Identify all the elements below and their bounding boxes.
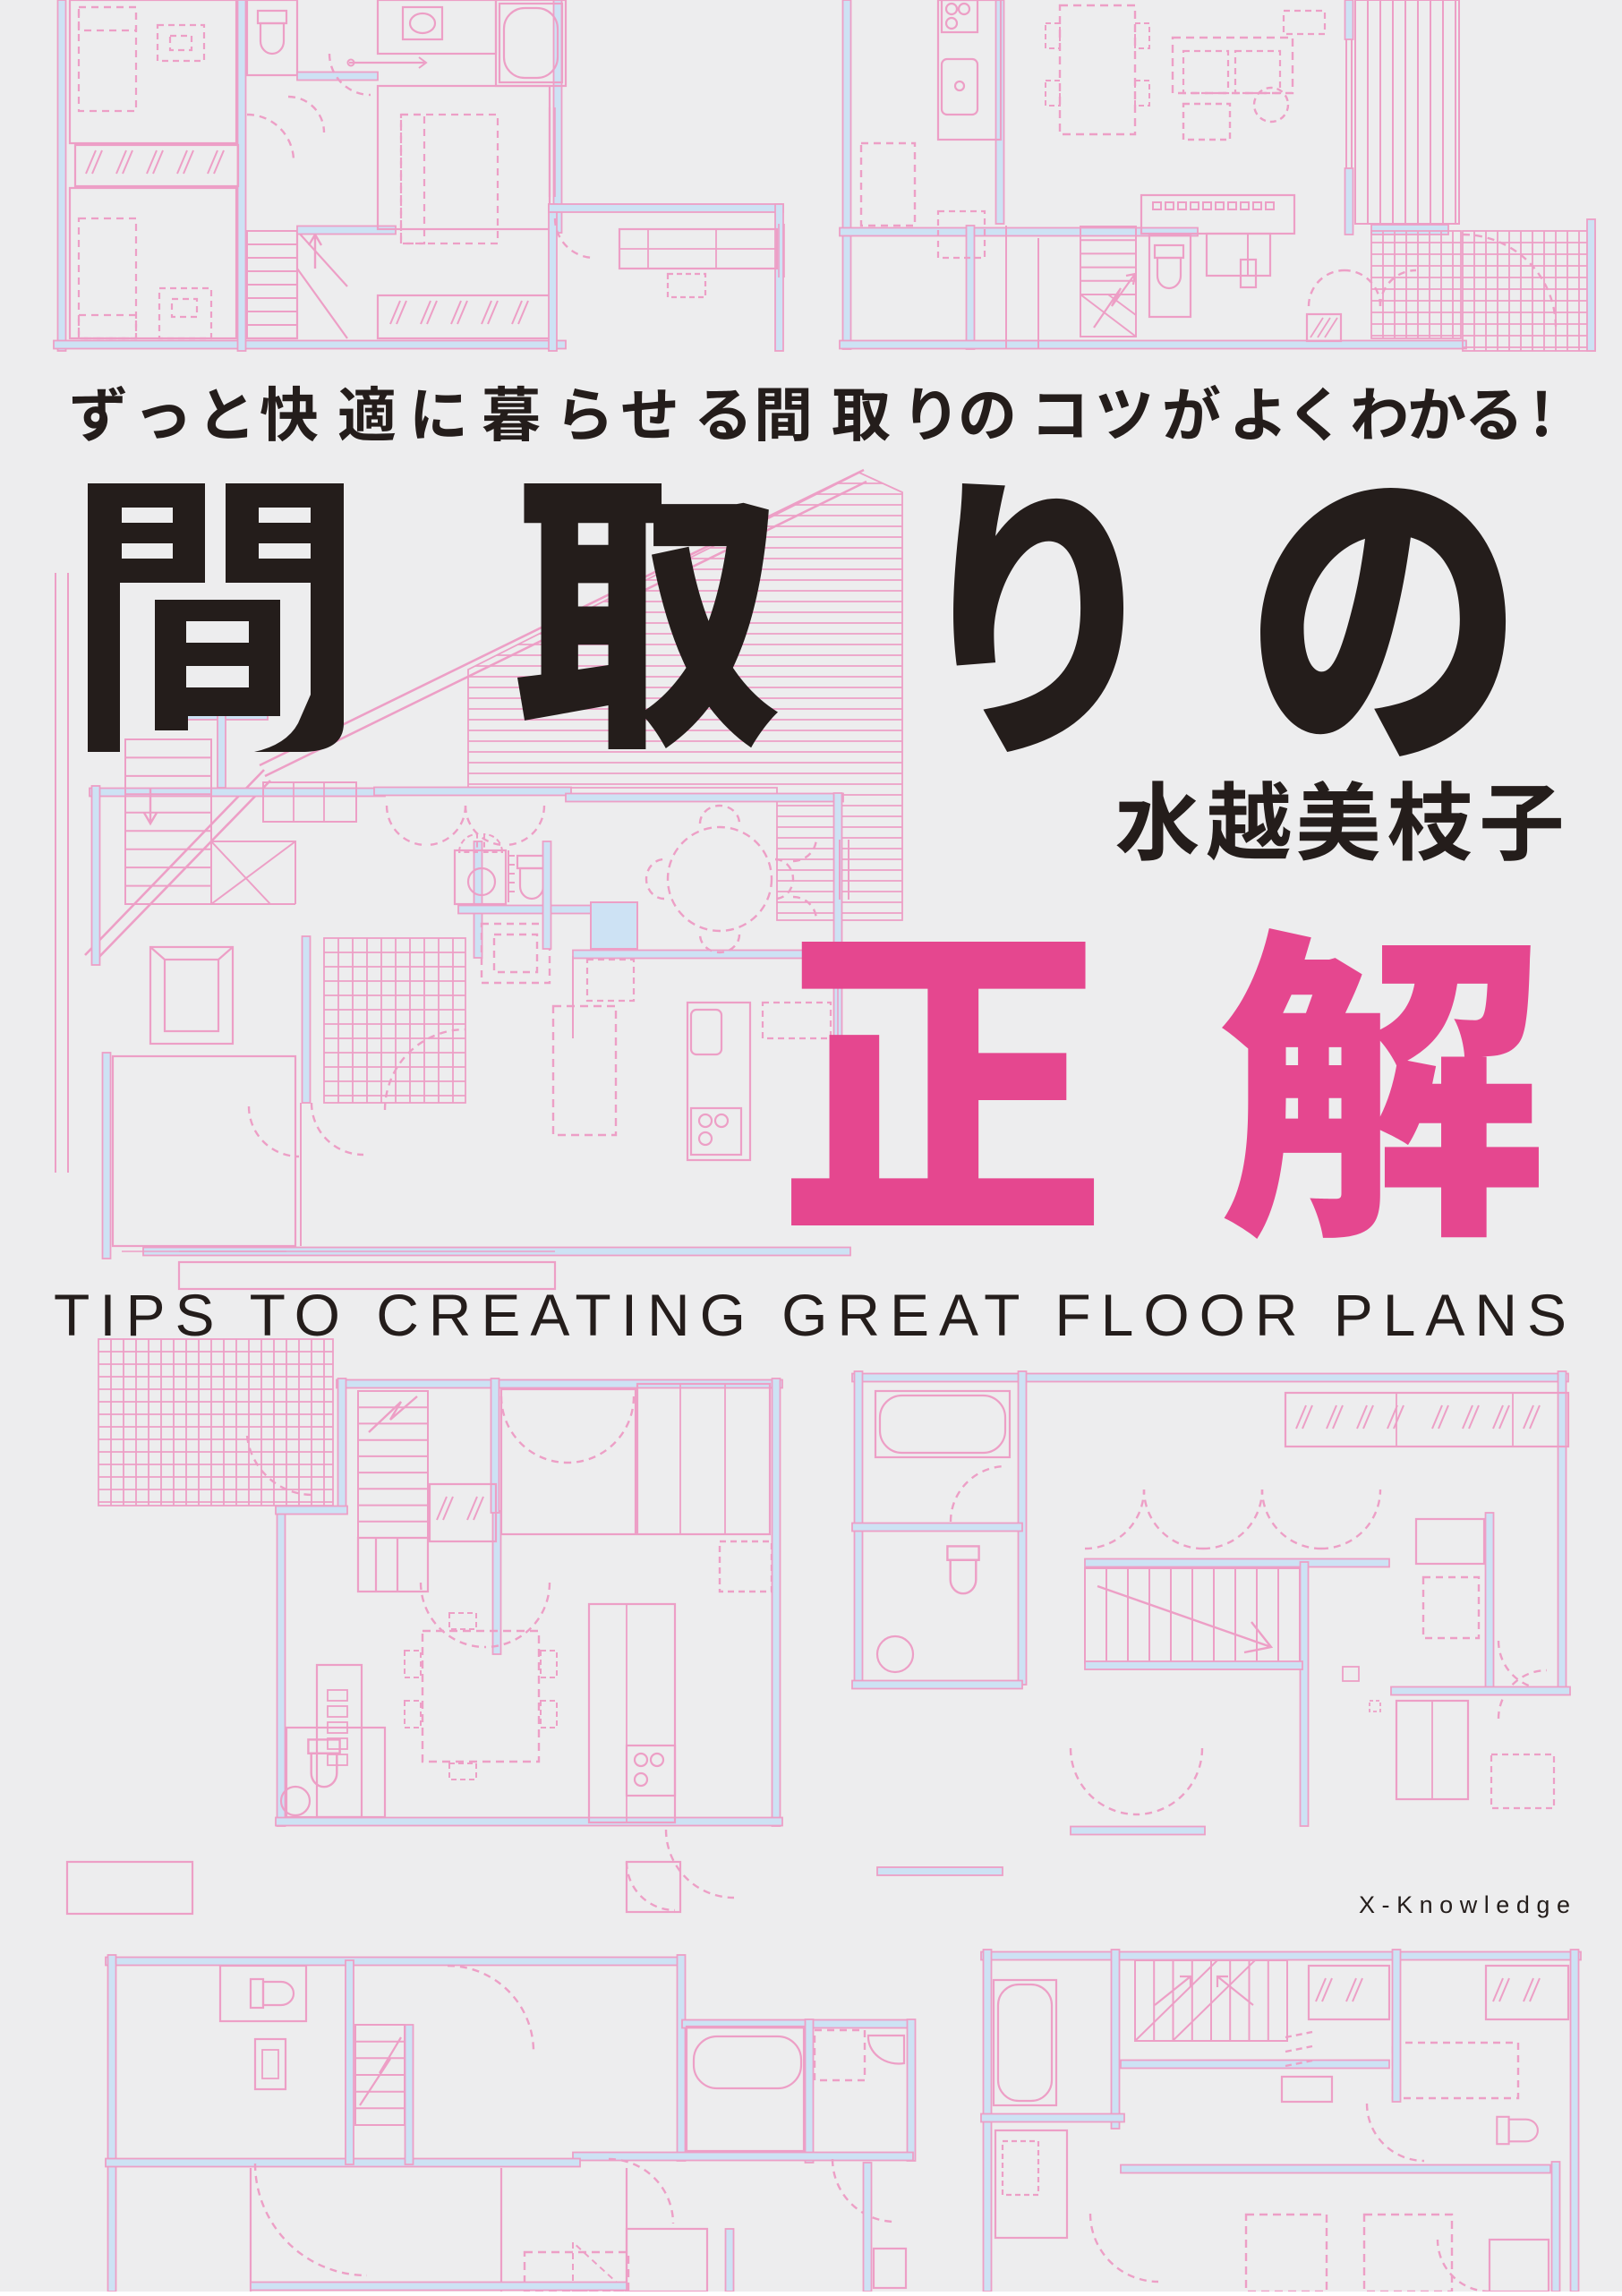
svg-text:TIPS TO CREATING GREAT FLOOR P: TIPS TO CREATING GREAT FLOOR PLANS <box>54 1282 1567 1348</box>
